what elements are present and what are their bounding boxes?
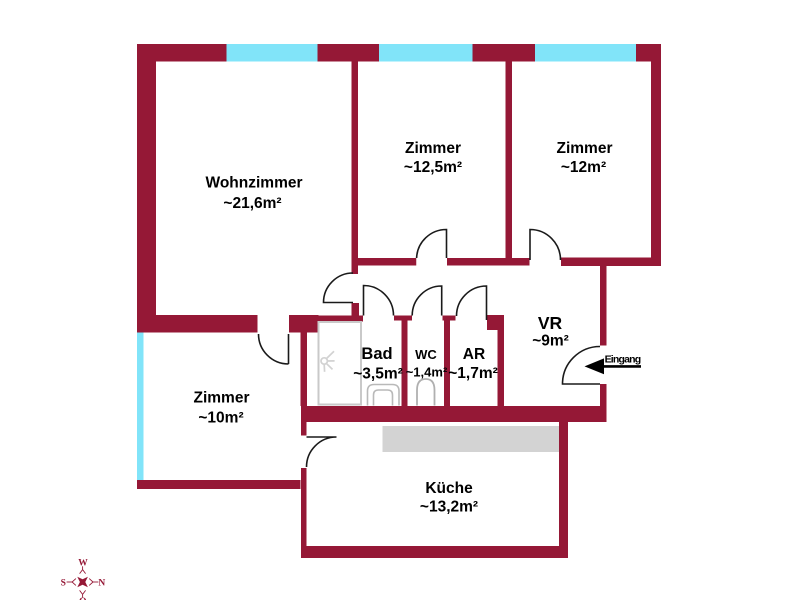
svg-text:S: S xyxy=(61,578,66,588)
svg-text:~12,5m²: ~12,5m² xyxy=(404,159,462,176)
svg-text:AR: AR xyxy=(463,346,485,363)
svg-text:~21,6m²: ~21,6m² xyxy=(223,195,281,212)
svg-text:Bad: Bad xyxy=(361,345,392,363)
svg-text:Zimmer: Zimmer xyxy=(557,140,613,157)
svg-text:VR: VR xyxy=(538,313,563,333)
svg-text:~12m²: ~12m² xyxy=(561,159,606,176)
svg-text:~13,2m²: ~13,2m² xyxy=(420,499,478,516)
svg-text:Zimmer: Zimmer xyxy=(405,140,461,157)
svg-text:Eingang: Eingang xyxy=(605,354,641,366)
svg-text:~1,7m²: ~1,7m² xyxy=(448,365,498,382)
svg-text:W: W xyxy=(78,558,88,568)
svg-text:~9m²: ~9m² xyxy=(532,333,569,350)
svg-text:~10m²: ~10m² xyxy=(198,410,243,427)
svg-text:Zimmer: Zimmer xyxy=(194,390,250,407)
svg-text:N: N xyxy=(98,578,105,588)
svg-text:~1,4m²: ~1,4m² xyxy=(406,364,448,379)
svg-text:Küche: Küche xyxy=(425,480,473,497)
svg-text:WC: WC xyxy=(415,347,437,362)
svg-text:Wohnzimmer: Wohnzimmer xyxy=(205,175,302,192)
svg-text:~3,5m²: ~3,5m² xyxy=(353,366,403,383)
